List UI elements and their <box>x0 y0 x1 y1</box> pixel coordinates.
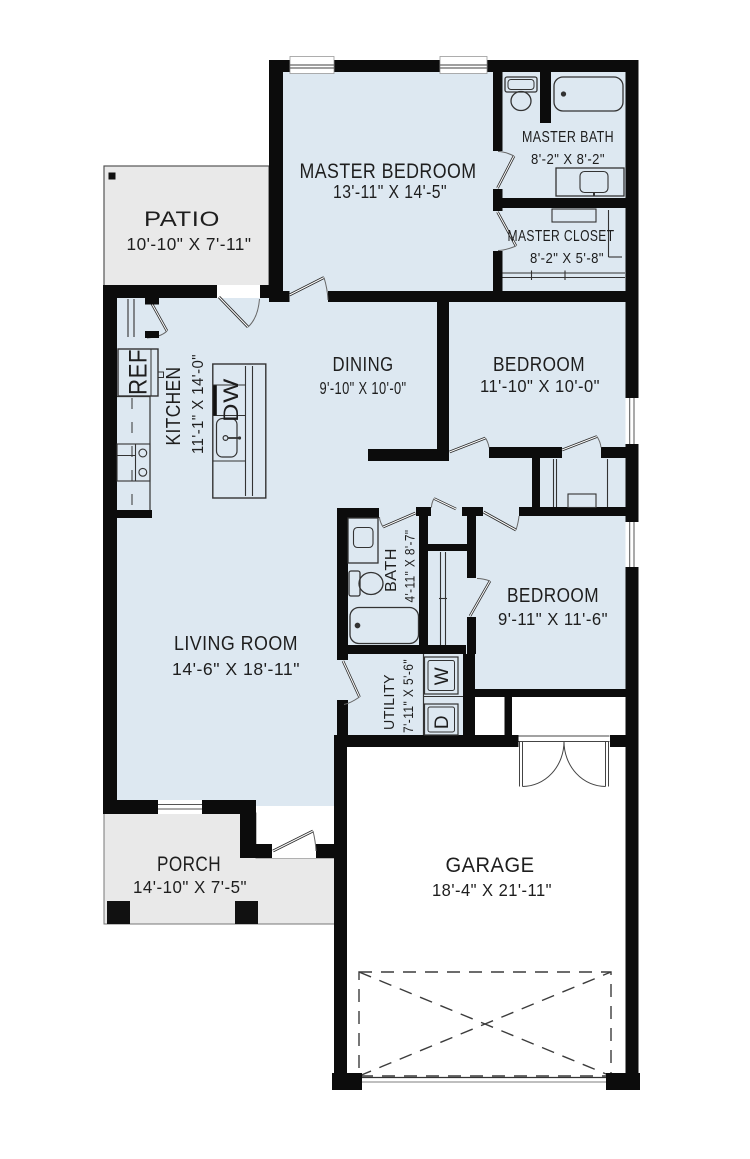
svg-text:8'-2" X 8'-2": 8'-2" X 8'-2" <box>531 152 605 168</box>
svg-text:KITCHEN: KITCHEN <box>163 367 185 446</box>
svg-text:MASTER BATH: MASTER BATH <box>522 129 614 146</box>
svg-text:BEDROOM: BEDROOM <box>507 585 599 607</box>
svg-text:PORCH: PORCH <box>157 853 221 876</box>
svg-text:DW: DW <box>220 378 243 422</box>
svg-text:13'-11" X 14'-5": 13'-11" X 14'-5" <box>333 182 447 202</box>
svg-text:GARAGE: GARAGE <box>446 854 535 877</box>
svg-text:MASTER BEDROOM: MASTER BEDROOM <box>300 160 477 183</box>
svg-text:18'-4" X 21'-11": 18'-4" X 21'-11" <box>432 880 552 900</box>
svg-text:11'-10" X 10'-0": 11'-10" X 10'-0" <box>480 376 600 396</box>
svg-text:LIVING ROOM: LIVING ROOM <box>174 633 298 655</box>
svg-text:REF: REF <box>125 349 153 395</box>
svg-text:9'-10" X 10'-0": 9'-10" X 10'-0" <box>320 378 407 398</box>
svg-text:UTILITY: UTILITY <box>381 674 398 730</box>
svg-text:14'-10" X 7'-5": 14'-10" X 7'-5" <box>133 877 247 897</box>
svg-text:PATIO: PATIO <box>144 208 220 231</box>
svg-text:4'-11" X 8'-7": 4'-11" X 8'-7" <box>402 530 418 603</box>
svg-text:11'-1" X 14'-0": 11'-1" X 14'-0" <box>190 354 207 454</box>
svg-text:8'-2" X 5'-8": 8'-2" X 5'-8" <box>530 251 604 267</box>
svg-text:MASTER CLOSET: MASTER CLOSET <box>508 228 615 245</box>
svg-text:10'-10" X 7'-11": 10'-10" X 7'-11" <box>127 234 252 254</box>
svg-text:9'-11" X 11'-6": 9'-11" X 11'-6" <box>498 609 608 629</box>
svg-text:W: W <box>432 667 453 685</box>
svg-text:14'-6" X 18'-11": 14'-6" X 18'-11" <box>172 659 300 679</box>
svg-text:BEDROOM: BEDROOM <box>493 354 585 376</box>
svg-text:7'-11" X 5'-6": 7'-11" X 5'-6" <box>400 659 416 733</box>
svg-text:BATH: BATH <box>383 548 400 592</box>
svg-text:DINING: DINING <box>333 354 394 376</box>
svg-text:D: D <box>432 715 453 729</box>
